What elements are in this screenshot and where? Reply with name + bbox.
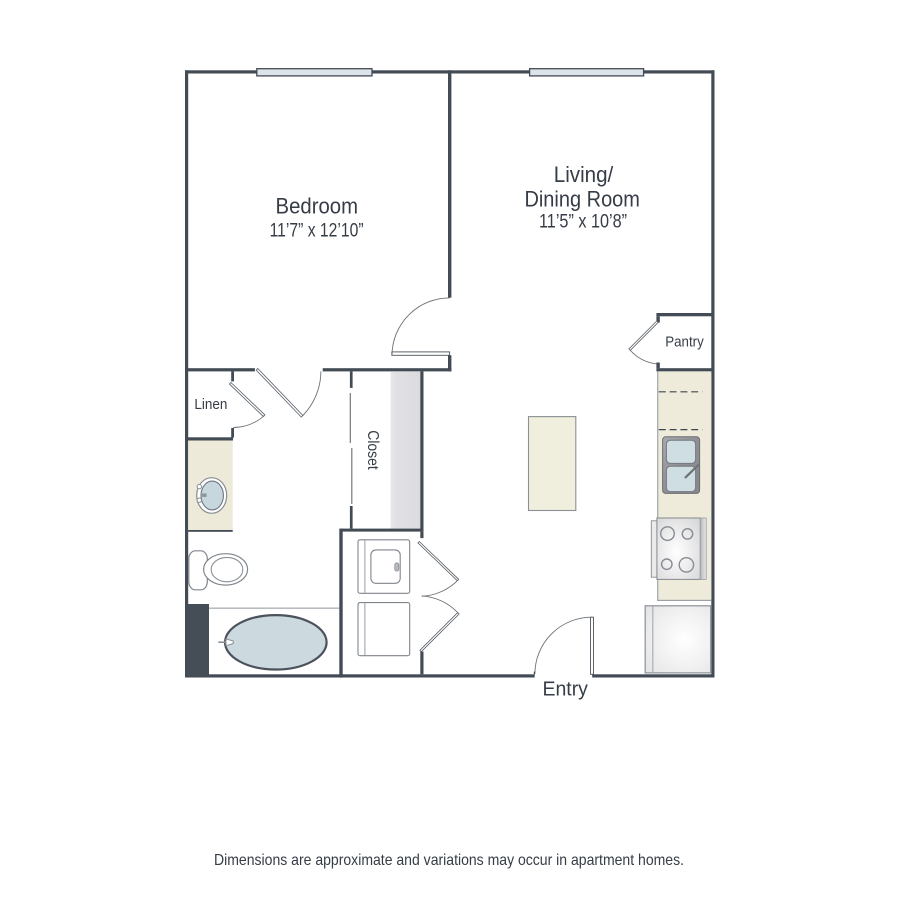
svg-text:Living/: Living/ <box>554 162 614 187</box>
svg-text:11’7” x 12’10”: 11’7” x 12’10” <box>270 219 364 241</box>
svg-text:Dining Room: Dining Room <box>524 186 640 211</box>
svg-text:Linen: Linen <box>194 396 227 413</box>
svg-text:Pantry: Pantry <box>665 335 704 351</box>
svg-text:Bedroom: Bedroom <box>276 194 359 219</box>
svg-text:Closet: Closet <box>364 430 381 470</box>
svg-text:Entry: Entry <box>542 679 588 701</box>
svg-text:Dimensions are approximate and: Dimensions are approximate and variation… <box>214 852 684 869</box>
svg-text:11’5” x 10’8”: 11’5” x 10’8” <box>539 211 627 233</box>
